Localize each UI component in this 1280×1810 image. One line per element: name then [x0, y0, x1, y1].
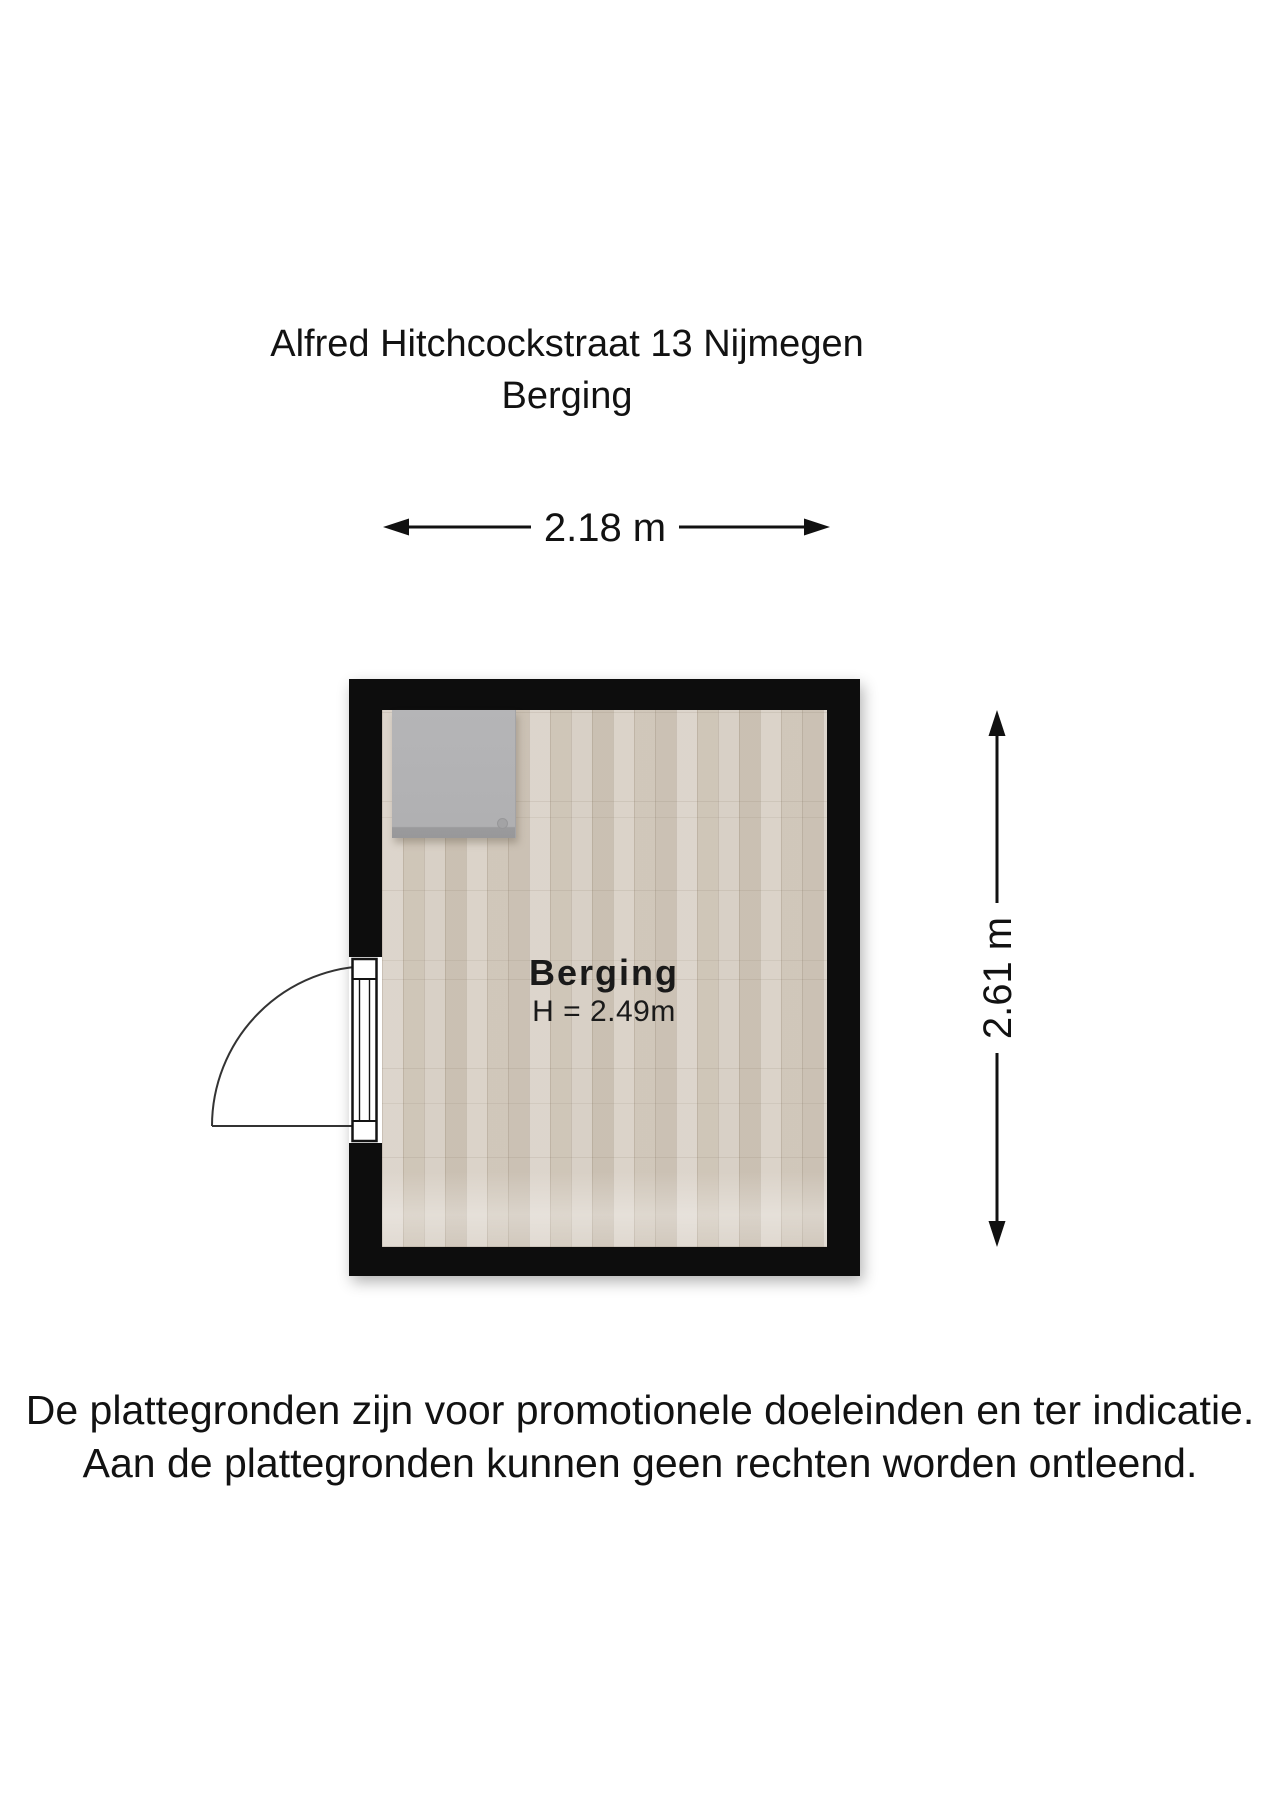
arrow-left-icon: [383, 519, 409, 536]
arrow-down-icon: [989, 1221, 1006, 1247]
disclaimer-line-2: Aan de plattegronden kunnen geen rechten…: [0, 1437, 1280, 1490]
door-swing-arc: [212, 966, 372, 1126]
door-frame: [353, 959, 377, 1141]
width-dimension: 2.18 m: [383, 506, 830, 550]
arrow-right-icon: [804, 519, 830, 536]
arrow-up-icon: [989, 710, 1006, 736]
dimension-and-door-overlay: 2.18 m 2.61 m: [0, 0, 1280, 1810]
height-dimension: 2.61 m: [976, 710, 1020, 1247]
disclaimer: De plattegronden zijn voor promotionele …: [0, 1384, 1280, 1490]
height-dimension-label: 2.61 m: [976, 917, 1020, 1039]
width-dimension-label: 2.18 m: [544, 506, 666, 550]
door-symbol: [212, 959, 377, 1141]
disclaimer-line-1: De plattegronden zijn voor promotionele …: [0, 1384, 1280, 1437]
floorplan-page: Alfred Hitchcockstraat 13 Nijmegen Bergi…: [0, 0, 1280, 1810]
